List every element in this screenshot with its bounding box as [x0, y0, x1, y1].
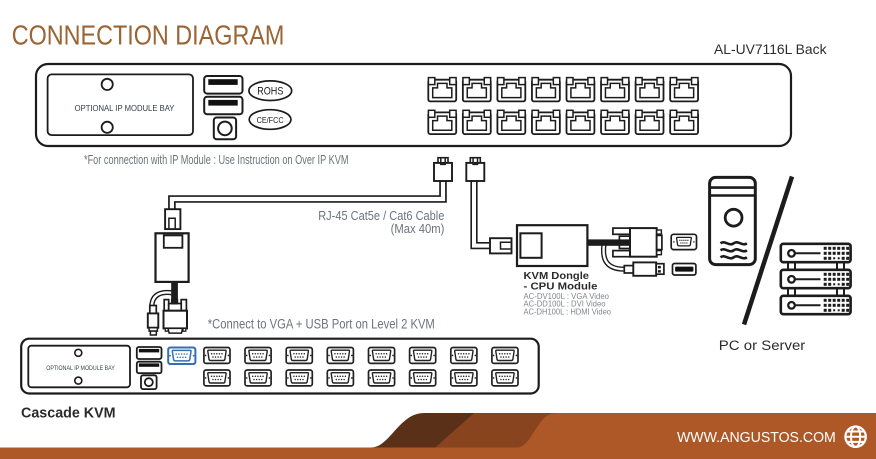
svg-text:WWW.ANGUSTOS.COM: WWW.ANGUSTOS.COM [677, 429, 836, 446]
svg-text:*For connection with IP Module: *For connection with IP Module : Use Ins… [84, 152, 349, 167]
svg-text:CONNECTION DIAGRAM: CONNECTION DIAGRAM [12, 20, 285, 51]
svg-text:Cascade KVM: Cascade KVM [21, 404, 116, 421]
svg-text:OPTIONAL IP MODULE BAY: OPTIONAL IP MODULE BAY [46, 365, 115, 372]
svg-text:AL-UV7116L Back: AL-UV7116L Back [714, 41, 827, 57]
svg-text:ROHS: ROHS [257, 86, 283, 98]
svg-text:AC-DH100L : HDMI Video: AC-DH100L : HDMI Video [524, 306, 612, 316]
svg-text:(Max 40m): (Max 40m) [391, 221, 445, 236]
svg-text:OPTIONAL IP MODULE BAY: OPTIONAL IP MODULE BAY [75, 103, 175, 113]
svg-text:CE/FCC: CE/FCC [257, 115, 284, 125]
svg-text:PC or Server: PC or Server [719, 338, 806, 354]
svg-text:*Connect to VGA + USB Port on: *Connect to VGA + USB Port on Level 2 KV… [208, 317, 435, 332]
